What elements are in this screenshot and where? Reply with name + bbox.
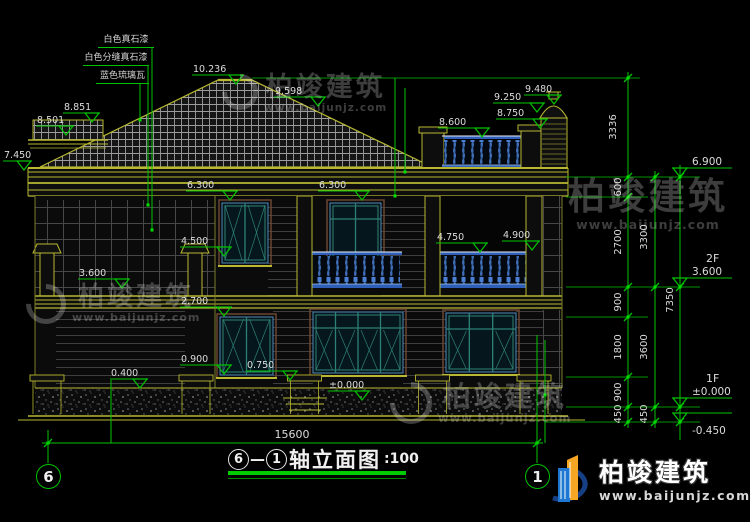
- dim-text: 3600: [639, 334, 650, 359]
- dim-text: 0.900: [181, 354, 208, 365]
- material-label: 白色分缝真石漆: [83, 54, 149, 66]
- dim-text: 8.851: [64, 102, 91, 113]
- dim-text: 4.750: [437, 232, 464, 243]
- title-axis-bubble: 6: [228, 449, 249, 470]
- title-underline-thin: [228, 478, 406, 479]
- dim-text: 3.600: [79, 268, 106, 279]
- dim-text: 9.480: [525, 84, 552, 95]
- dim-text: 1800: [613, 334, 624, 359]
- dim-text: 3300: [639, 224, 650, 249]
- dim-text: 7.450: [4, 150, 31, 161]
- dim-text: 9.598: [275, 86, 302, 97]
- dim-text: 2700: [613, 229, 624, 254]
- material-label: 蓝色琉璃瓦: [96, 72, 149, 84]
- dim-text: 4.500: [181, 236, 208, 247]
- dim-text: 3.600: [692, 266, 722, 278]
- dim-text: 900: [613, 382, 624, 401]
- dim-text: 3336: [608, 114, 619, 139]
- title-dash: —: [250, 450, 265, 468]
- axis-bubble-6: 6: [36, 464, 61, 489]
- dim-text: 6.300: [319, 180, 346, 191]
- dim-text: 450: [639, 404, 650, 423]
- material-label: 白色真石漆: [98, 36, 154, 48]
- dim-text: 6.300: [187, 180, 214, 191]
- dim-text: 8.750: [497, 108, 524, 119]
- dim-text: -0.450: [692, 425, 726, 437]
- dim-text: 9.250: [494, 92, 521, 103]
- title-scale: :100: [384, 451, 419, 467]
- title-axis-bubble: 1: [266, 449, 287, 470]
- title-text: 轴立面图: [289, 444, 381, 474]
- brand-logo: 柏竣建筑 www.baijunjz.com: [545, 452, 750, 510]
- dim-text: 2.700: [181, 296, 208, 307]
- dim-text: 8.501: [37, 115, 64, 126]
- dim-text: 0.400: [111, 368, 138, 379]
- dim-text: 450: [613, 404, 624, 423]
- dim-text: 2F: [706, 252, 719, 265]
- drawing-title: 6 — 1 轴立面图 :100: [228, 444, 419, 474]
- dim-text: 600: [613, 177, 624, 196]
- dim-text: 10.236: [193, 64, 226, 75]
- dim-text: 900: [613, 292, 624, 311]
- dim-text: 15600: [275, 428, 310, 441]
- building-logo-icon: [545, 452, 593, 510]
- dim-text: 6.900: [692, 156, 722, 168]
- title-underline: [228, 471, 406, 475]
- brand-url: www.baijunjz.com: [599, 488, 750, 503]
- cad-elevation-drawing: 柏竣建筑 www.baijunjz.com 柏竣建筑 www.baijunjz.…: [0, 0, 750, 522]
- brand-name: 柏竣建筑: [599, 459, 750, 487]
- dim-text: 1F: [706, 372, 719, 385]
- dim-text: ±0.000: [329, 380, 364, 391]
- dim-text: 8.600: [439, 117, 466, 128]
- dim-text: 7350: [665, 287, 676, 312]
- dim-text: ±0.000: [692, 386, 731, 398]
- dim-text: 0.750: [247, 360, 274, 371]
- dim-text: 4.900: [503, 230, 530, 241]
